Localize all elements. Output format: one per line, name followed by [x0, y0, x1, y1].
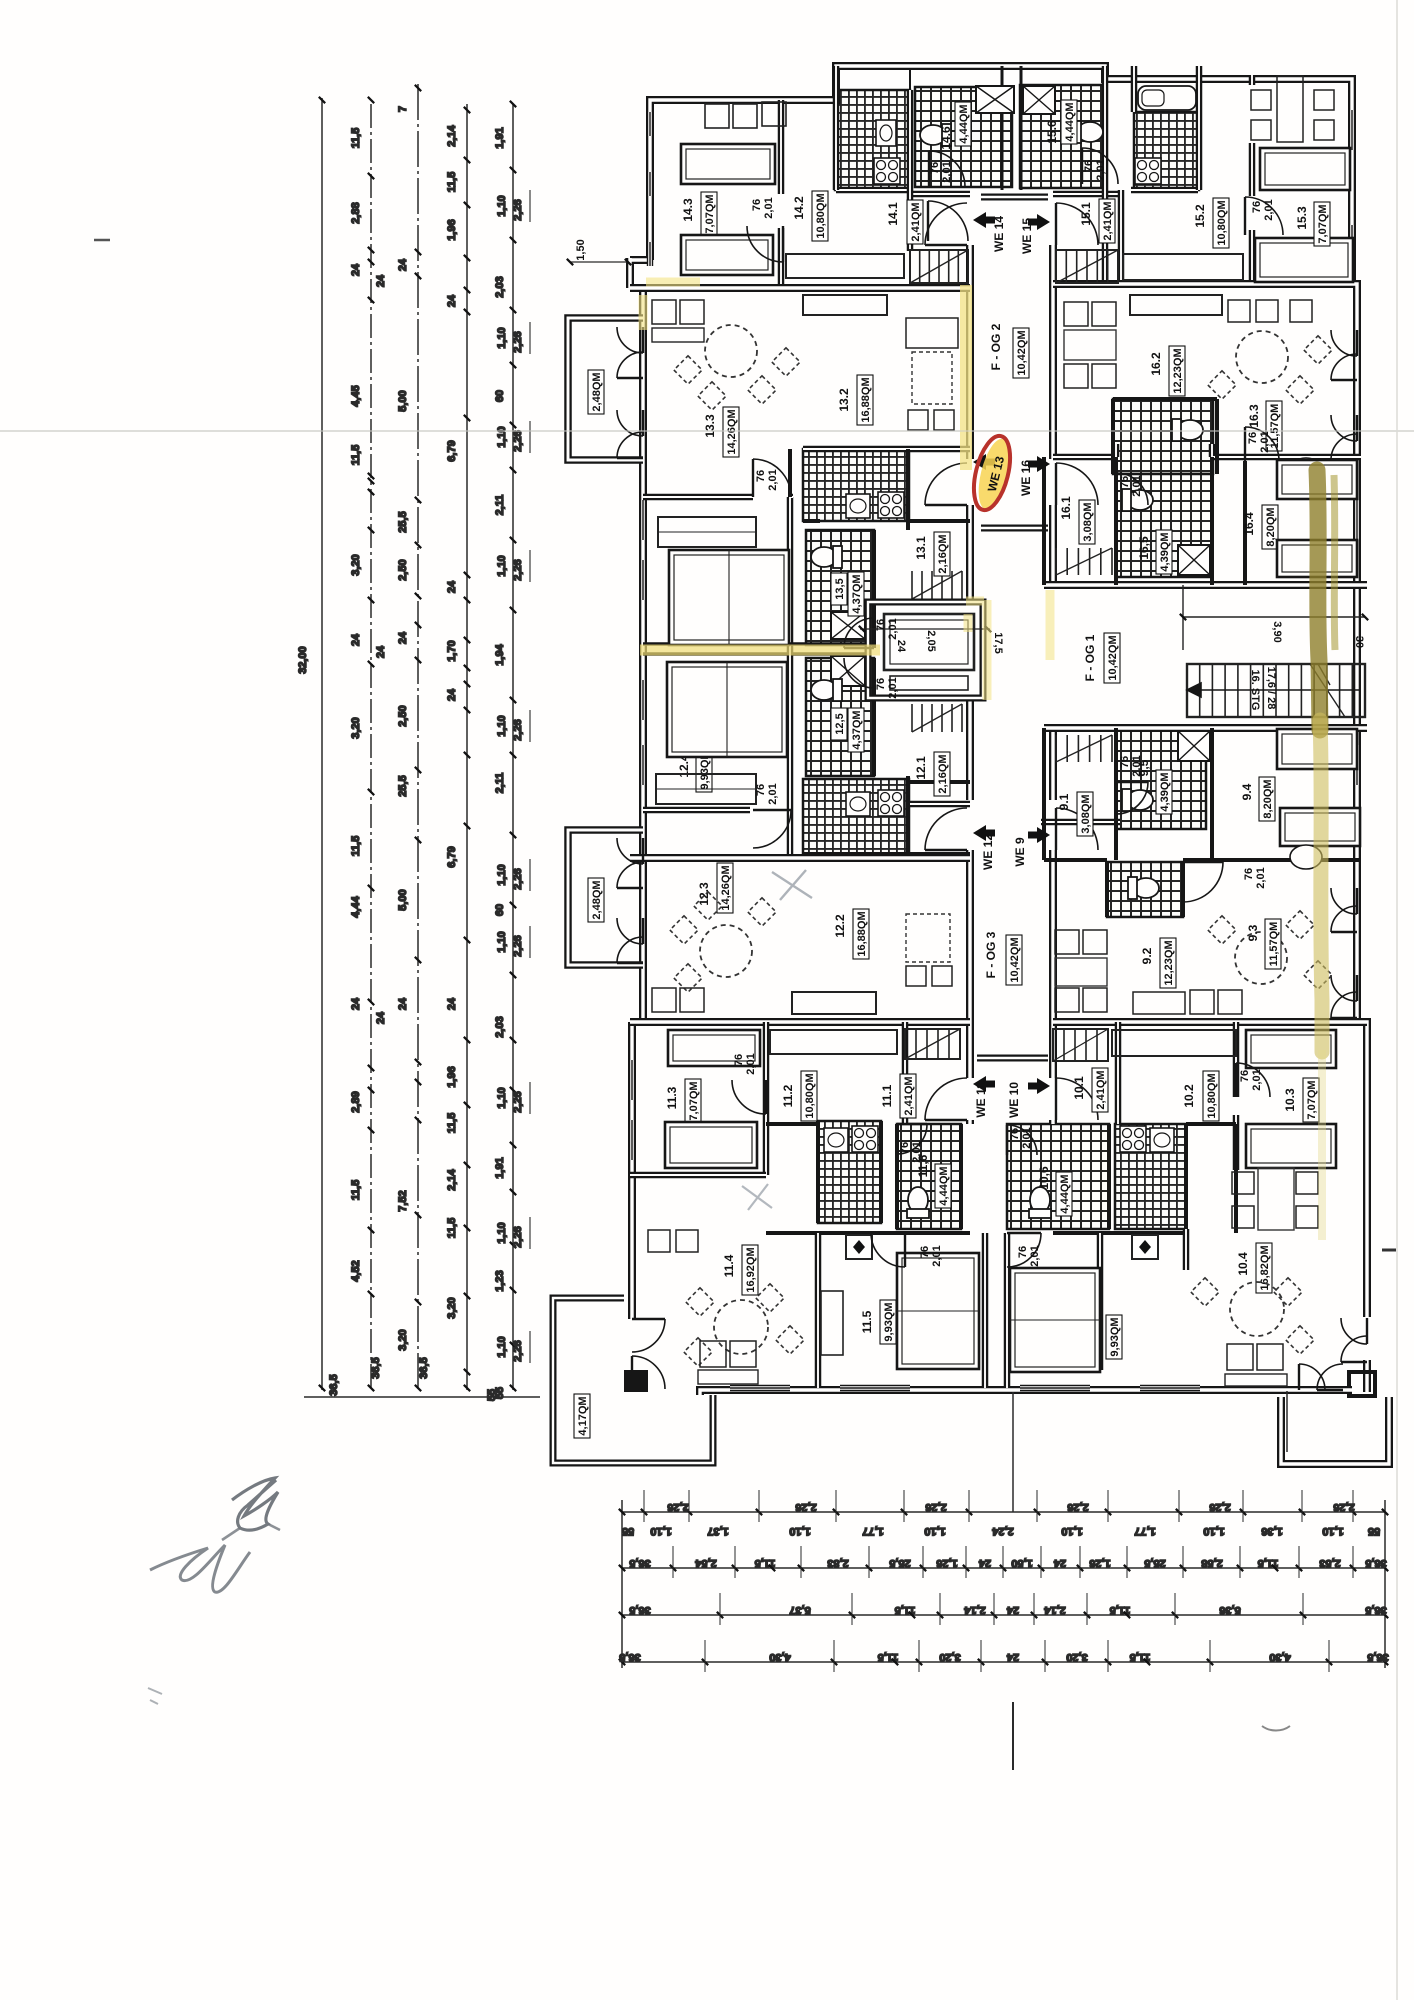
- svg-text:1,37: 1,37: [707, 1525, 728, 1537]
- svg-text:2,01: 2,01: [1131, 755, 1143, 776]
- svg-text:12.2: 12.2: [833, 914, 847, 938]
- svg-text:24: 24: [397, 631, 409, 644]
- svg-text:WE 11: WE 11: [974, 1082, 988, 1118]
- svg-text:4,44QM: 4,44QM: [958, 104, 970, 143]
- svg-text:3,20: 3,20: [446, 1297, 458, 1318]
- svg-text:76: 76: [929, 162, 941, 174]
- svg-text:2,01: 2,01: [887, 618, 899, 639]
- svg-text:11,5: 11,5: [350, 128, 362, 149]
- svg-text:2,54: 2,54: [694, 1557, 716, 1569]
- svg-text:76: 76: [751, 199, 763, 211]
- svg-text:9,93QM: 9,93QM: [883, 1302, 895, 1341]
- svg-text:24: 24: [978, 1557, 991, 1569]
- svg-text:16. STG: 16. STG: [1249, 670, 1261, 711]
- svg-text:9.4: 9.4: [1240, 783, 1254, 800]
- svg-text:6,79: 6,79: [446, 440, 458, 461]
- svg-text:7,52: 7,52: [397, 1190, 409, 1211]
- svg-text:11.4: 11.4: [722, 1254, 736, 1277]
- svg-text:2,01: 2,01: [1263, 199, 1275, 220]
- svg-text:76: 76: [1243, 868, 1255, 880]
- svg-text:24: 24: [375, 274, 387, 287]
- svg-text:3,08QM: 3,08QM: [1080, 794, 1092, 833]
- svg-text:3,20: 3,20: [1066, 1651, 1087, 1663]
- svg-text:1,77: 1,77: [1134, 1525, 1155, 1537]
- svg-text:14.6: 14.6: [939, 126, 953, 150]
- svg-text:17,5: 17,5: [992, 632, 1004, 653]
- svg-text:2,26: 2,26: [1209, 1501, 1230, 1513]
- svg-text:24: 24: [1053, 1557, 1066, 1569]
- svg-text:16,92QM: 16,92QM: [745, 1247, 757, 1292]
- svg-text:24: 24: [397, 997, 409, 1010]
- svg-text:13.2: 13.2: [837, 388, 851, 412]
- svg-text:WE 9: WE 9: [1013, 837, 1027, 867]
- svg-text:2,41QM: 2,41QM: [1095, 1070, 1107, 1109]
- svg-text:16.2: 16.2: [1149, 352, 1163, 376]
- svg-text:WE 15: WE 15: [1020, 218, 1034, 254]
- svg-text:24: 24: [375, 1011, 387, 1024]
- svg-text:7,07QM: 7,07QM: [704, 194, 716, 233]
- svg-text:10.4: 10.4: [1236, 1252, 1250, 1276]
- svg-text:1,10: 1,10: [1322, 1525, 1343, 1537]
- svg-text:16,88QM: 16,88QM: [856, 911, 868, 956]
- svg-text:4,39QM: 4,39QM: [1159, 532, 1171, 571]
- svg-text:2,26: 2,26: [512, 868, 524, 889]
- svg-text:2,03: 2,03: [494, 1016, 506, 1037]
- svg-text:11,5: 11,5: [446, 172, 458, 193]
- svg-text:1,10: 1,10: [650, 1525, 671, 1537]
- svg-text:4,45: 4,45: [350, 385, 362, 406]
- svg-text:10,42QM: 10,42QM: [1016, 330, 1028, 375]
- svg-text:4,44QM: 4,44QM: [1059, 1174, 1071, 1213]
- svg-text:5,36: 5,36: [1219, 1604, 1240, 1616]
- svg-text:36,5: 36,5: [619, 1651, 640, 1663]
- svg-text:10,42QM: 10,42QM: [1009, 937, 1021, 982]
- svg-text:5,00: 5,00: [397, 390, 409, 411]
- svg-text:36,5: 36,5: [370, 1357, 382, 1378]
- svg-text:4,52: 4,52: [350, 1260, 362, 1281]
- svg-text:2,50: 2,50: [397, 705, 409, 726]
- svg-text:24: 24: [446, 688, 458, 701]
- svg-text:12,5: 12,5: [834, 713, 846, 734]
- svg-text:76: 76: [733, 1054, 745, 1066]
- svg-text:15.1: 15.1: [1079, 202, 1093, 226]
- svg-text:24: 24: [397, 258, 409, 271]
- svg-text:1,10: 1,10: [496, 555, 508, 576]
- svg-text:24: 24: [446, 294, 458, 307]
- svg-text:1,91: 1,91: [494, 1157, 506, 1178]
- svg-text:4,37QM: 4,37QM: [851, 710, 863, 749]
- svg-text:2,14: 2,14: [446, 124, 458, 146]
- svg-text:24: 24: [1006, 1604, 1019, 1616]
- svg-text:55: 55: [486, 1389, 498, 1401]
- svg-text:17,6 / 28: 17,6 / 28: [1265, 667, 1277, 710]
- svg-text:13,5: 13,5: [834, 578, 846, 599]
- svg-text:1,10: 1,10: [496, 327, 508, 348]
- svg-text:36,5: 36,5: [629, 1557, 650, 1569]
- svg-text:10,6: 10,6: [1037, 1166, 1051, 1190]
- svg-text:1,96: 1,96: [446, 1066, 458, 1087]
- svg-text:2,01: 2,01: [931, 1245, 943, 1266]
- svg-text:2,26: 2,26: [512, 1340, 524, 1361]
- svg-text:15.3: 15.3: [1295, 206, 1309, 230]
- svg-text:2,01: 2,01: [1251, 1069, 1263, 1090]
- svg-text:76: 76: [1083, 160, 1095, 172]
- svg-text:2,26: 2,26: [512, 935, 524, 956]
- svg-text:25,5: 25,5: [397, 511, 409, 532]
- svg-text:2,41QM: 2,41QM: [903, 1076, 915, 1115]
- svg-text:12,23QM: 12,23QM: [1172, 348, 1184, 393]
- svg-text:1,77: 1,77: [862, 1525, 883, 1537]
- svg-text:11,5: 11,5: [350, 1180, 362, 1201]
- svg-text:16,5: 16,5: [1137, 536, 1151, 560]
- svg-text:16,88QM: 16,88QM: [860, 377, 872, 422]
- svg-text:10.1: 10.1: [1072, 1076, 1086, 1100]
- svg-text:10,80QM: 10,80QM: [1216, 200, 1228, 245]
- svg-text:16.3: 16.3: [1247, 404, 1261, 428]
- svg-text:36,5: 36,5: [1365, 1604, 1386, 1616]
- svg-text:7,07QM: 7,07QM: [688, 1081, 700, 1120]
- svg-text:2,24: 2,24: [991, 1525, 1013, 1537]
- svg-text:11,5: 11,5: [350, 445, 362, 466]
- svg-text:9.2: 9.2: [1140, 947, 1154, 964]
- svg-text:2,01: 2,01: [1021, 1127, 1033, 1148]
- svg-text:11.1: 11.1: [880, 1084, 894, 1107]
- svg-text:76: 76: [1017, 1246, 1029, 1258]
- svg-text:16.4: 16.4: [1242, 512, 1256, 536]
- svg-text:2,26: 2,26: [512, 1091, 524, 1112]
- svg-text:76: 76: [1009, 1128, 1021, 1140]
- svg-text:2,14: 2,14: [446, 1168, 458, 1190]
- svg-text:15.6: 15.6: [1045, 120, 1059, 144]
- svg-text:4,44QM: 4,44QM: [1064, 102, 1076, 141]
- svg-text:1,91: 1,91: [494, 127, 506, 148]
- svg-text:2,11: 2,11: [494, 495, 506, 516]
- svg-text:2,48QM: 2,48QM: [591, 372, 603, 411]
- svg-text:76: 76: [1239, 1070, 1251, 1082]
- svg-text:2,01: 2,01: [911, 1141, 923, 1162]
- svg-text:2,01: 2,01: [1029, 1245, 1041, 1266]
- svg-text:12.1: 12.1: [914, 756, 928, 780]
- svg-text:14.1: 14.1: [886, 202, 900, 226]
- svg-text:2,26: 2,26: [512, 199, 524, 220]
- svg-text:16.1: 16.1: [1059, 496, 1073, 520]
- svg-text:1,36: 1,36: [1261, 1525, 1282, 1537]
- svg-text:2,16QM: 2,16QM: [937, 534, 949, 573]
- svg-text:4,30: 4,30: [1269, 1651, 1290, 1663]
- svg-text:WE 12: WE 12: [981, 834, 995, 870]
- svg-text:1,10: 1,10: [1203, 1525, 1224, 1537]
- svg-text:2,26: 2,26: [512, 430, 524, 451]
- svg-text:2,01: 2,01: [887, 677, 899, 698]
- svg-text:2,26: 2,26: [667, 1501, 688, 1513]
- svg-text:76: 76: [755, 784, 767, 796]
- svg-text:9,93QM: 9,93QM: [1109, 1317, 1121, 1356]
- svg-text:1,10: 1,10: [496, 1222, 508, 1243]
- svg-text:76: 76: [1119, 756, 1131, 768]
- svg-text:24: 24: [350, 997, 362, 1010]
- svg-text:2,26: 2,26: [512, 1226, 524, 1247]
- svg-text:76: 76: [875, 619, 887, 631]
- svg-text:9.3: 9.3: [1246, 924, 1260, 941]
- svg-text:2,48QM: 2,48QM: [591, 880, 603, 919]
- svg-text:10,80QM: 10,80QM: [1206, 1073, 1218, 1118]
- svg-text:10,80QM: 10,80QM: [804, 1073, 816, 1118]
- svg-text:11,5: 11,5: [350, 836, 362, 857]
- svg-text:2,01: 2,01: [941, 161, 953, 182]
- svg-text:4,44: 4,44: [350, 895, 362, 917]
- svg-text:2,01: 2,01: [1095, 159, 1107, 180]
- svg-text:2,01: 2,01: [763, 197, 775, 218]
- svg-text:14,26QM: 14,26QM: [726, 409, 738, 454]
- svg-text:2,26: 2,26: [1333, 1501, 1354, 1513]
- svg-text:2,14: 2,14: [963, 1604, 985, 1616]
- svg-text:11,5: 11,5: [446, 1218, 458, 1239]
- svg-text:2,16QM: 2,16QM: [937, 754, 949, 793]
- svg-text:WE 14: WE 14: [992, 216, 1006, 252]
- svg-text:1,10: 1,10: [496, 426, 508, 447]
- svg-text:1,10: 1,10: [496, 1087, 508, 1108]
- svg-text:15.2: 15.2: [1193, 204, 1207, 228]
- svg-text:2,01: 2,01: [767, 469, 779, 490]
- svg-text:5,37: 5,37: [789, 1604, 810, 1616]
- svg-text:2,58: 2,58: [1201, 1557, 1222, 1569]
- svg-text:76: 76: [899, 1142, 911, 1154]
- svg-text:3,20: 3,20: [397, 1329, 409, 1350]
- svg-text:2,26: 2,26: [1067, 1501, 1088, 1513]
- svg-text:1,10: 1,10: [1061, 1525, 1082, 1537]
- svg-text:1,10: 1,10: [924, 1525, 945, 1537]
- svg-text:2,26: 2,26: [795, 1501, 816, 1513]
- svg-text:55: 55: [1368, 1525, 1380, 1537]
- svg-text:13.1: 13.1: [914, 536, 928, 560]
- svg-text:76: 76: [755, 470, 767, 482]
- svg-text:55: 55: [622, 1525, 634, 1537]
- svg-text:2,88: 2,88: [350, 202, 362, 223]
- svg-text:60: 60: [494, 390, 506, 402]
- svg-text:36,5: 36,5: [328, 1374, 340, 1395]
- svg-text:2,26: 2,26: [512, 559, 524, 580]
- svg-text:24: 24: [1006, 1651, 1019, 1663]
- svg-text:76: 76: [875, 678, 887, 690]
- svg-text:1,26: 1,26: [936, 1557, 957, 1569]
- svg-text:7,07QM: 7,07QM: [1317, 204, 1329, 243]
- svg-text:25,5: 25,5: [397, 775, 409, 796]
- svg-text:F - OG 3: F - OG 3: [984, 931, 998, 978]
- svg-text:14.2: 14.2: [792, 196, 806, 220]
- svg-text:2,41QM: 2,41QM: [910, 202, 922, 241]
- svg-text:F - OG 1: F - OG 1: [1083, 634, 1097, 681]
- svg-text:11.5: 11.5: [860, 1310, 874, 1333]
- svg-text:11,5: 11,5: [446, 1113, 458, 1134]
- svg-text:25,5: 25,5: [889, 1557, 910, 1569]
- svg-text:60: 60: [494, 904, 506, 916]
- svg-text:6,79: 6,79: [446, 846, 458, 867]
- svg-text:1,10: 1,10: [496, 864, 508, 885]
- svg-text:3,90: 3,90: [1271, 621, 1283, 642]
- svg-text:1,96: 1,96: [446, 219, 458, 240]
- svg-text:3,20: 3,20: [939, 1651, 960, 1663]
- svg-text:4,37QM: 4,37QM: [851, 574, 863, 613]
- svg-text:24: 24: [446, 997, 458, 1010]
- svg-text:1,10: 1,10: [496, 1336, 508, 1357]
- svg-text:36,5: 36,5: [629, 1604, 650, 1616]
- svg-text:2,01: 2,01: [1131, 475, 1143, 496]
- svg-text:4,39QM: 4,39QM: [1159, 772, 1171, 811]
- svg-text:4,30: 4,30: [769, 1651, 790, 1663]
- svg-text:1,10: 1,10: [496, 931, 508, 952]
- svg-text:1,70: 1,70: [446, 640, 458, 661]
- svg-text:14.3: 14.3: [681, 198, 695, 222]
- svg-text:3,20: 3,20: [350, 554, 362, 575]
- svg-text:4,17QM: 4,17QM: [577, 1396, 589, 1435]
- svg-text:7: 7: [397, 106, 409, 112]
- svg-text:2,01: 2,01: [767, 783, 779, 804]
- svg-text:36,5: 36,5: [1365, 1557, 1386, 1569]
- svg-text:76: 76: [919, 1246, 931, 1258]
- svg-text:11.2: 11.2: [781, 1084, 795, 1107]
- svg-text:2,83: 2,83: [827, 1557, 848, 1569]
- svg-text:2,01: 2,01: [1255, 867, 1267, 888]
- svg-text:2,05: 2,05: [925, 630, 937, 651]
- svg-text:25,5: 25,5: [1144, 1557, 1165, 1569]
- svg-text:14,26QM: 14,26QM: [720, 865, 732, 910]
- svg-text:24: 24: [350, 633, 362, 646]
- svg-text:2,89: 2,89: [350, 1091, 362, 1112]
- svg-text:1,10: 1,10: [496, 195, 508, 216]
- svg-text:WE 10: WE 10: [1007, 1082, 1021, 1118]
- svg-text:2,03: 2,03: [494, 276, 506, 297]
- svg-text:10.2: 10.2: [1182, 1084, 1196, 1108]
- svg-text:32,00: 32,00: [297, 646, 309, 674]
- svg-text:8,20QM: 8,20QM: [1265, 507, 1277, 546]
- svg-text:2,41QM: 2,41QM: [1102, 201, 1114, 240]
- svg-text:13.3: 13.3: [703, 414, 717, 438]
- svg-text:8,20QM: 8,20QM: [1262, 779, 1274, 818]
- svg-text:2,50: 2,50: [397, 559, 409, 580]
- svg-text:24: 24: [350, 263, 362, 276]
- svg-text:9.1: 9.1: [1057, 793, 1071, 810]
- svg-text:7,07QM: 7,07QM: [1306, 1080, 1318, 1119]
- svg-text:10,80QM: 10,80QM: [815, 193, 827, 238]
- svg-text:2,26: 2,26: [512, 719, 524, 740]
- svg-text:76: 76: [1247, 432, 1259, 444]
- svg-text:1,23: 1,23: [494, 1270, 506, 1291]
- svg-text:76: 76: [1251, 201, 1263, 213]
- svg-text:2,11: 2,11: [494, 773, 506, 794]
- svg-text:3,08QM: 3,08QM: [1082, 502, 1094, 541]
- svg-text:11.3: 11.3: [665, 1086, 679, 1109]
- svg-text:WE 16: WE 16: [1019, 460, 1033, 496]
- svg-text:1,10: 1,10: [789, 1525, 810, 1537]
- svg-text:2,14: 2,14: [1043, 1604, 1065, 1616]
- svg-text:12,23QM: 12,23QM: [1163, 940, 1175, 985]
- svg-text:76: 76: [1119, 476, 1131, 488]
- svg-text:24: 24: [375, 645, 387, 658]
- svg-text:36,5: 36,5: [418, 1357, 430, 1378]
- svg-text:1,50: 1,50: [1011, 1557, 1032, 1569]
- svg-text:11,57QM: 11,57QM: [1268, 922, 1280, 967]
- svg-text:3,20: 3,20: [350, 717, 362, 738]
- svg-text:24: 24: [895, 640, 907, 653]
- svg-text:10,42QM: 10,42QM: [1107, 635, 1119, 680]
- svg-text:5,00: 5,00: [397, 889, 409, 910]
- svg-text:F - OG 2: F - OG 2: [989, 323, 1003, 370]
- svg-text:1,50: 1,50: [575, 239, 587, 260]
- svg-text:2,26: 2,26: [512, 331, 524, 352]
- svg-text:4,44QM: 4,44QM: [938, 1166, 950, 1205]
- svg-text:36,5: 36,5: [1367, 1651, 1388, 1663]
- svg-text:24: 24: [446, 580, 458, 593]
- svg-text:1,94: 1,94: [494, 643, 506, 665]
- svg-text:30: 30: [1353, 636, 1365, 648]
- svg-text:1,26: 1,26: [1089, 1557, 1110, 1569]
- svg-text:2,26: 2,26: [925, 1501, 946, 1513]
- svg-text:2,53: 2,53: [1319, 1557, 1340, 1569]
- svg-text:2,01: 2,01: [745, 1053, 757, 1074]
- svg-text:1,10: 1,10: [496, 715, 508, 736]
- svg-text:10.3: 10.3: [1283, 1088, 1297, 1112]
- svg-text:2,01: 2,01: [1259, 431, 1271, 452]
